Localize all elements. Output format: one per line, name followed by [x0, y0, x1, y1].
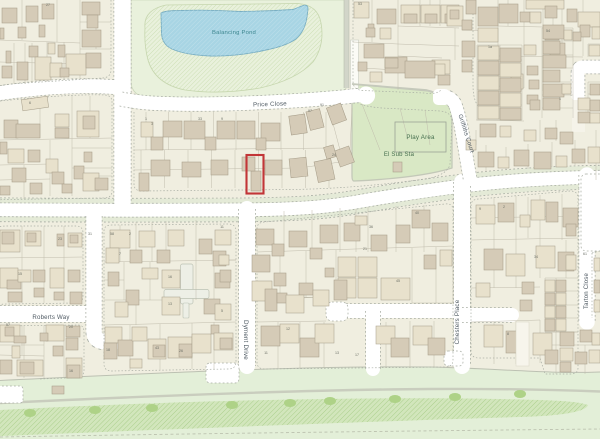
svg-text:13: 13 [335, 351, 339, 355]
svg-text:45: 45 [396, 279, 400, 283]
svg-text:5: 5 [221, 309, 223, 313]
svg-text:2: 2 [129, 232, 131, 236]
svg-text:61: 61 [583, 252, 587, 256]
svg-text:40: 40 [415, 211, 419, 215]
svg-text:20: 20 [69, 325, 73, 329]
svg-text:31: 31 [88, 232, 92, 236]
svg-text:97: 97 [308, 109, 312, 113]
svg-text:26: 26 [179, 349, 183, 353]
svg-text:36: 36 [369, 225, 373, 229]
svg-text:18: 18 [106, 348, 110, 352]
svg-text:27: 27 [46, 3, 50, 7]
svg-text:8: 8 [507, 332, 509, 336]
svg-text:Tarton Close: Tarton Close [584, 273, 590, 310]
svg-text:11: 11 [264, 351, 268, 355]
svg-text:21: 21 [363, 247, 367, 251]
svg-text:15: 15 [18, 272, 22, 276]
svg-text:53: 53 [358, 2, 362, 6]
svg-text:34: 34 [534, 255, 538, 259]
svg-text:91: 91 [320, 103, 324, 107]
svg-text:1: 1 [559, 97, 561, 101]
svg-text:43: 43 [155, 346, 159, 350]
svg-text:Price Close: Price Close [253, 100, 287, 108]
svg-text:9: 9 [221, 117, 223, 121]
svg-text:2: 2 [503, 205, 505, 209]
svg-text:Play Area: Play Area [406, 134, 435, 141]
svg-text:13: 13 [168, 302, 172, 306]
svg-text:6: 6 [29, 101, 31, 105]
svg-text:Roberts Way: Roberts Way [32, 314, 70, 321]
svg-text:24: 24 [332, 153, 336, 157]
svg-text:16: 16 [168, 275, 172, 279]
svg-text:Balancing Pond: Balancing Pond [212, 30, 256, 36]
svg-text:El Sub Sta: El Sub Sta [384, 152, 415, 158]
svg-text:58: 58 [110, 232, 114, 236]
svg-text:23: 23 [58, 237, 62, 241]
svg-text:12: 12 [286, 327, 290, 331]
svg-text:57: 57 [6, 323, 10, 327]
svg-text:33: 33 [198, 117, 202, 121]
svg-text:Dyment Drive: Dyment Drive [242, 320, 249, 360]
svg-text:Chesters Place: Chesters Place [454, 299, 461, 344]
svg-text:3: 3 [151, 122, 153, 126]
svg-text:11: 11 [220, 225, 224, 229]
svg-text:54: 54 [546, 29, 550, 33]
svg-text:1: 1 [145, 117, 147, 121]
svg-text:9: 9 [479, 207, 481, 211]
svg-text:16: 16 [69, 369, 73, 373]
svg-text:1a: 1a [488, 45, 492, 49]
svg-text:7: 7 [119, 252, 121, 256]
svg-text:17: 17 [355, 353, 359, 357]
